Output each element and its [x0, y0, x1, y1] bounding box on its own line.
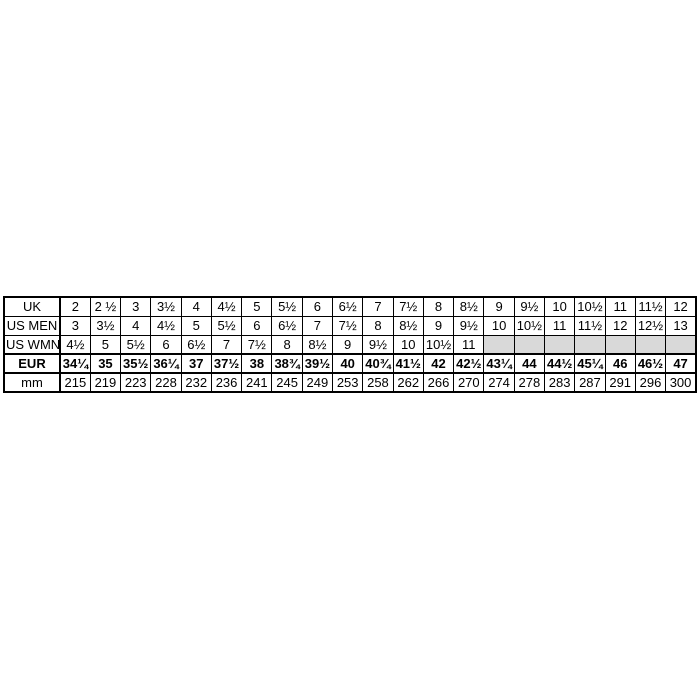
size-cell: 12	[666, 297, 696, 316]
size-cell: 44½	[545, 354, 575, 373]
size-cell: 7½	[242, 335, 272, 354]
size-cell: 11	[454, 335, 484, 354]
size-cell: 9	[333, 335, 363, 354]
table-body: UK22 ½33½44½55½66½77½88½99½1010½1111½12U…	[4, 297, 696, 392]
shoe-size-conversion-table: UK22 ½33½44½55½66½77½88½99½1010½1111½12U…	[3, 296, 697, 393]
size-cell: 9½	[363, 335, 393, 354]
size-cell: 10	[545, 297, 575, 316]
size-cell: 2	[60, 297, 90, 316]
size-cell: 3	[121, 297, 151, 316]
size-cell: 41½	[393, 354, 423, 373]
size-cell: 270	[454, 373, 484, 392]
size-cell: 8½	[454, 297, 484, 316]
size-cell: 223	[121, 373, 151, 392]
size-cell: 2 ½	[90, 297, 120, 316]
size-cell: 12½	[635, 316, 665, 335]
size-cell: 274	[484, 373, 514, 392]
size-cell: 11	[545, 316, 575, 335]
size-cell: 296	[635, 373, 665, 392]
size-cell: 11	[605, 297, 635, 316]
size-cell: 5	[181, 316, 211, 335]
size-cell: 283	[545, 373, 575, 392]
size-cell: 47	[666, 354, 696, 373]
empty-size-cell	[484, 335, 514, 354]
size-cell: 6	[151, 335, 181, 354]
size-cell: 38¾	[272, 354, 302, 373]
table-row-mm: mm21521922322823223624124524925325826226…	[4, 373, 696, 392]
size-cell: 44	[514, 354, 544, 373]
empty-size-cell	[605, 335, 635, 354]
size-cell: 37	[181, 354, 211, 373]
empty-size-cell	[545, 335, 575, 354]
table-row-uk: UK22 ½33½44½55½66½77½88½99½1010½1111½12	[4, 297, 696, 316]
row-header-uk: UK	[4, 297, 60, 316]
size-cell: 8½	[302, 335, 332, 354]
size-cell: 7	[363, 297, 393, 316]
size-cell: 10	[484, 316, 514, 335]
size-cell: 6½	[333, 297, 363, 316]
size-cell: 253	[333, 373, 363, 392]
size-cell: 11½	[635, 297, 665, 316]
size-cell: 10	[393, 335, 423, 354]
row-header-us-men: US MEN	[4, 316, 60, 335]
size-cell: 42½	[454, 354, 484, 373]
size-cell: 3½	[151, 297, 181, 316]
size-cell: 4½	[211, 297, 241, 316]
size-cell: 6½	[181, 335, 211, 354]
size-cell: 232	[181, 373, 211, 392]
row-header-us-wmn: US WMN	[4, 335, 60, 354]
size-cell: 291	[605, 373, 635, 392]
size-cell: 4½	[151, 316, 181, 335]
size-cell: 4½	[60, 335, 90, 354]
size-cell: 6	[242, 316, 272, 335]
size-cell: 249	[302, 373, 332, 392]
size-cell: 3½	[90, 316, 120, 335]
size-cell: 45¼	[575, 354, 605, 373]
size-cell: 10½	[423, 335, 453, 354]
size-cell: 9	[484, 297, 514, 316]
size-cell: 36¼	[151, 354, 181, 373]
row-header-mm: mm	[4, 373, 60, 392]
size-cell: 5½	[121, 335, 151, 354]
size-cell: 8	[423, 297, 453, 316]
size-cell: 215	[60, 373, 90, 392]
size-cell: 7½	[393, 297, 423, 316]
size-cell: 241	[242, 373, 272, 392]
size-cell: 13	[666, 316, 696, 335]
size-cell: 40	[333, 354, 363, 373]
size-cell: 6	[302, 297, 332, 316]
size-cell: 287	[575, 373, 605, 392]
size-cell: 46½	[635, 354, 665, 373]
table-row-eur: EUR34¼3535½36¼3737½3838¾39½4040¾41½4242½…	[4, 354, 696, 373]
size-cell: 5	[90, 335, 120, 354]
size-cell: 228	[151, 373, 181, 392]
size-cell: 9	[423, 316, 453, 335]
size-cell: 46	[605, 354, 635, 373]
size-cell: 34¼	[60, 354, 90, 373]
size-cell: 5	[242, 297, 272, 316]
size-cell: 40¾	[363, 354, 393, 373]
size-cell: 4	[181, 297, 211, 316]
empty-size-cell	[635, 335, 665, 354]
size-cell: 35½	[121, 354, 151, 373]
size-cell: 8½	[393, 316, 423, 335]
size-cell: 12	[605, 316, 635, 335]
size-cell: 258	[363, 373, 393, 392]
size-cell: 9½	[514, 297, 544, 316]
table-row-us-wmn: US WMN4½55½66½77½88½99½1010½11	[4, 335, 696, 354]
size-cell: 266	[423, 373, 453, 392]
size-cell: 3	[60, 316, 90, 335]
size-cell: 11½	[575, 316, 605, 335]
size-cell: 262	[393, 373, 423, 392]
size-cell: 42	[423, 354, 453, 373]
size-cell: 43¼	[484, 354, 514, 373]
size-cell: 7½	[333, 316, 363, 335]
size-cell: 245	[272, 373, 302, 392]
size-cell: 8	[272, 335, 302, 354]
size-cell: 219	[90, 373, 120, 392]
row-header-eur: EUR	[4, 354, 60, 373]
size-cell: 236	[211, 373, 241, 392]
page-canvas: UK22 ½33½44½55½66½77½88½99½1010½1111½12U…	[0, 0, 700, 700]
size-cell: 300	[666, 373, 696, 392]
size-cell: 8	[363, 316, 393, 335]
size-cell: 38	[242, 354, 272, 373]
empty-size-cell	[666, 335, 696, 354]
size-cell: 10½	[514, 316, 544, 335]
size-cell: 10½	[575, 297, 605, 316]
size-cell: 37½	[211, 354, 241, 373]
size-cell: 35	[90, 354, 120, 373]
empty-size-cell	[514, 335, 544, 354]
size-cell: 7	[302, 316, 332, 335]
size-cell: 6½	[272, 316, 302, 335]
size-cell: 9½	[454, 316, 484, 335]
size-cell: 7	[211, 335, 241, 354]
table-row-us-men: US MEN33½44½55½66½77½88½99½1010½1111½121…	[4, 316, 696, 335]
empty-size-cell	[575, 335, 605, 354]
size-cell: 4	[121, 316, 151, 335]
size-cell: 39½	[302, 354, 332, 373]
size-cell: 5½	[211, 316, 241, 335]
size-cell: 5½	[272, 297, 302, 316]
size-cell: 278	[514, 373, 544, 392]
